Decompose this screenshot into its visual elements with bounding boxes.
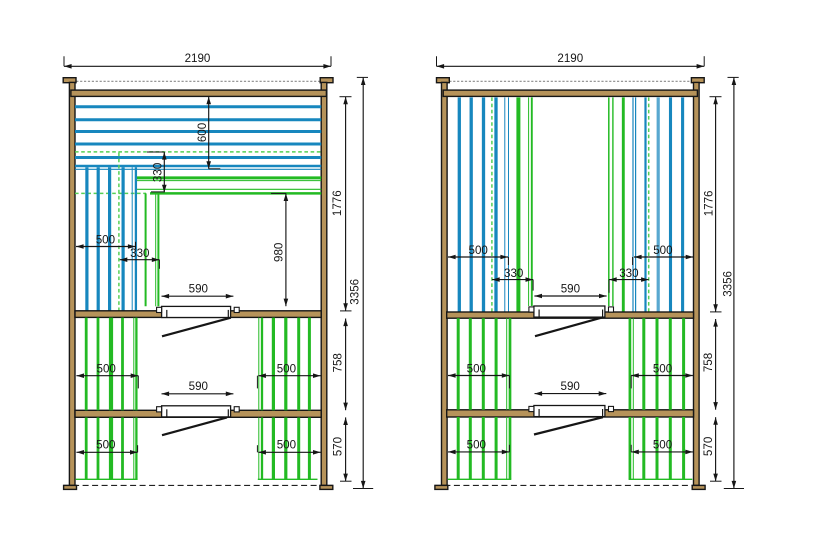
svg-text:590: 590 [561, 282, 580, 295]
svg-text:570: 570 [332, 437, 345, 456]
svg-text:330: 330 [504, 267, 523, 280]
svg-text:980: 980 [273, 243, 286, 262]
svg-text:330: 330 [130, 247, 149, 260]
svg-text:500: 500 [96, 439, 115, 452]
svg-text:600: 600 [196, 123, 209, 142]
svg-text:330: 330 [151, 163, 164, 182]
svg-text:500: 500 [653, 438, 672, 451]
svg-text:590: 590 [189, 380, 208, 393]
svg-text:2190: 2190 [185, 52, 211, 65]
svg-text:3356: 3356 [721, 271, 734, 297]
svg-text:590: 590 [561, 380, 580, 393]
svg-text:3356: 3356 [349, 279, 362, 305]
svg-text:1776: 1776 [331, 190, 344, 216]
svg-text:500: 500 [96, 234, 115, 247]
svg-text:330: 330 [619, 267, 638, 280]
svg-text:570: 570 [702, 437, 715, 456]
svg-text:500: 500 [97, 362, 116, 375]
svg-text:590: 590 [189, 282, 208, 295]
svg-text:758: 758 [702, 353, 715, 372]
svg-text:500: 500 [277, 362, 296, 375]
svg-text:1776: 1776 [703, 191, 716, 217]
svg-text:2190: 2190 [557, 52, 583, 65]
svg-text:500: 500 [467, 438, 486, 451]
svg-text:500: 500 [277, 439, 296, 452]
svg-text:758: 758 [332, 353, 345, 372]
svg-text:500: 500 [653, 362, 672, 375]
svg-text:500: 500 [469, 244, 488, 257]
svg-text:500: 500 [467, 362, 486, 375]
svg-text:500: 500 [653, 244, 672, 257]
